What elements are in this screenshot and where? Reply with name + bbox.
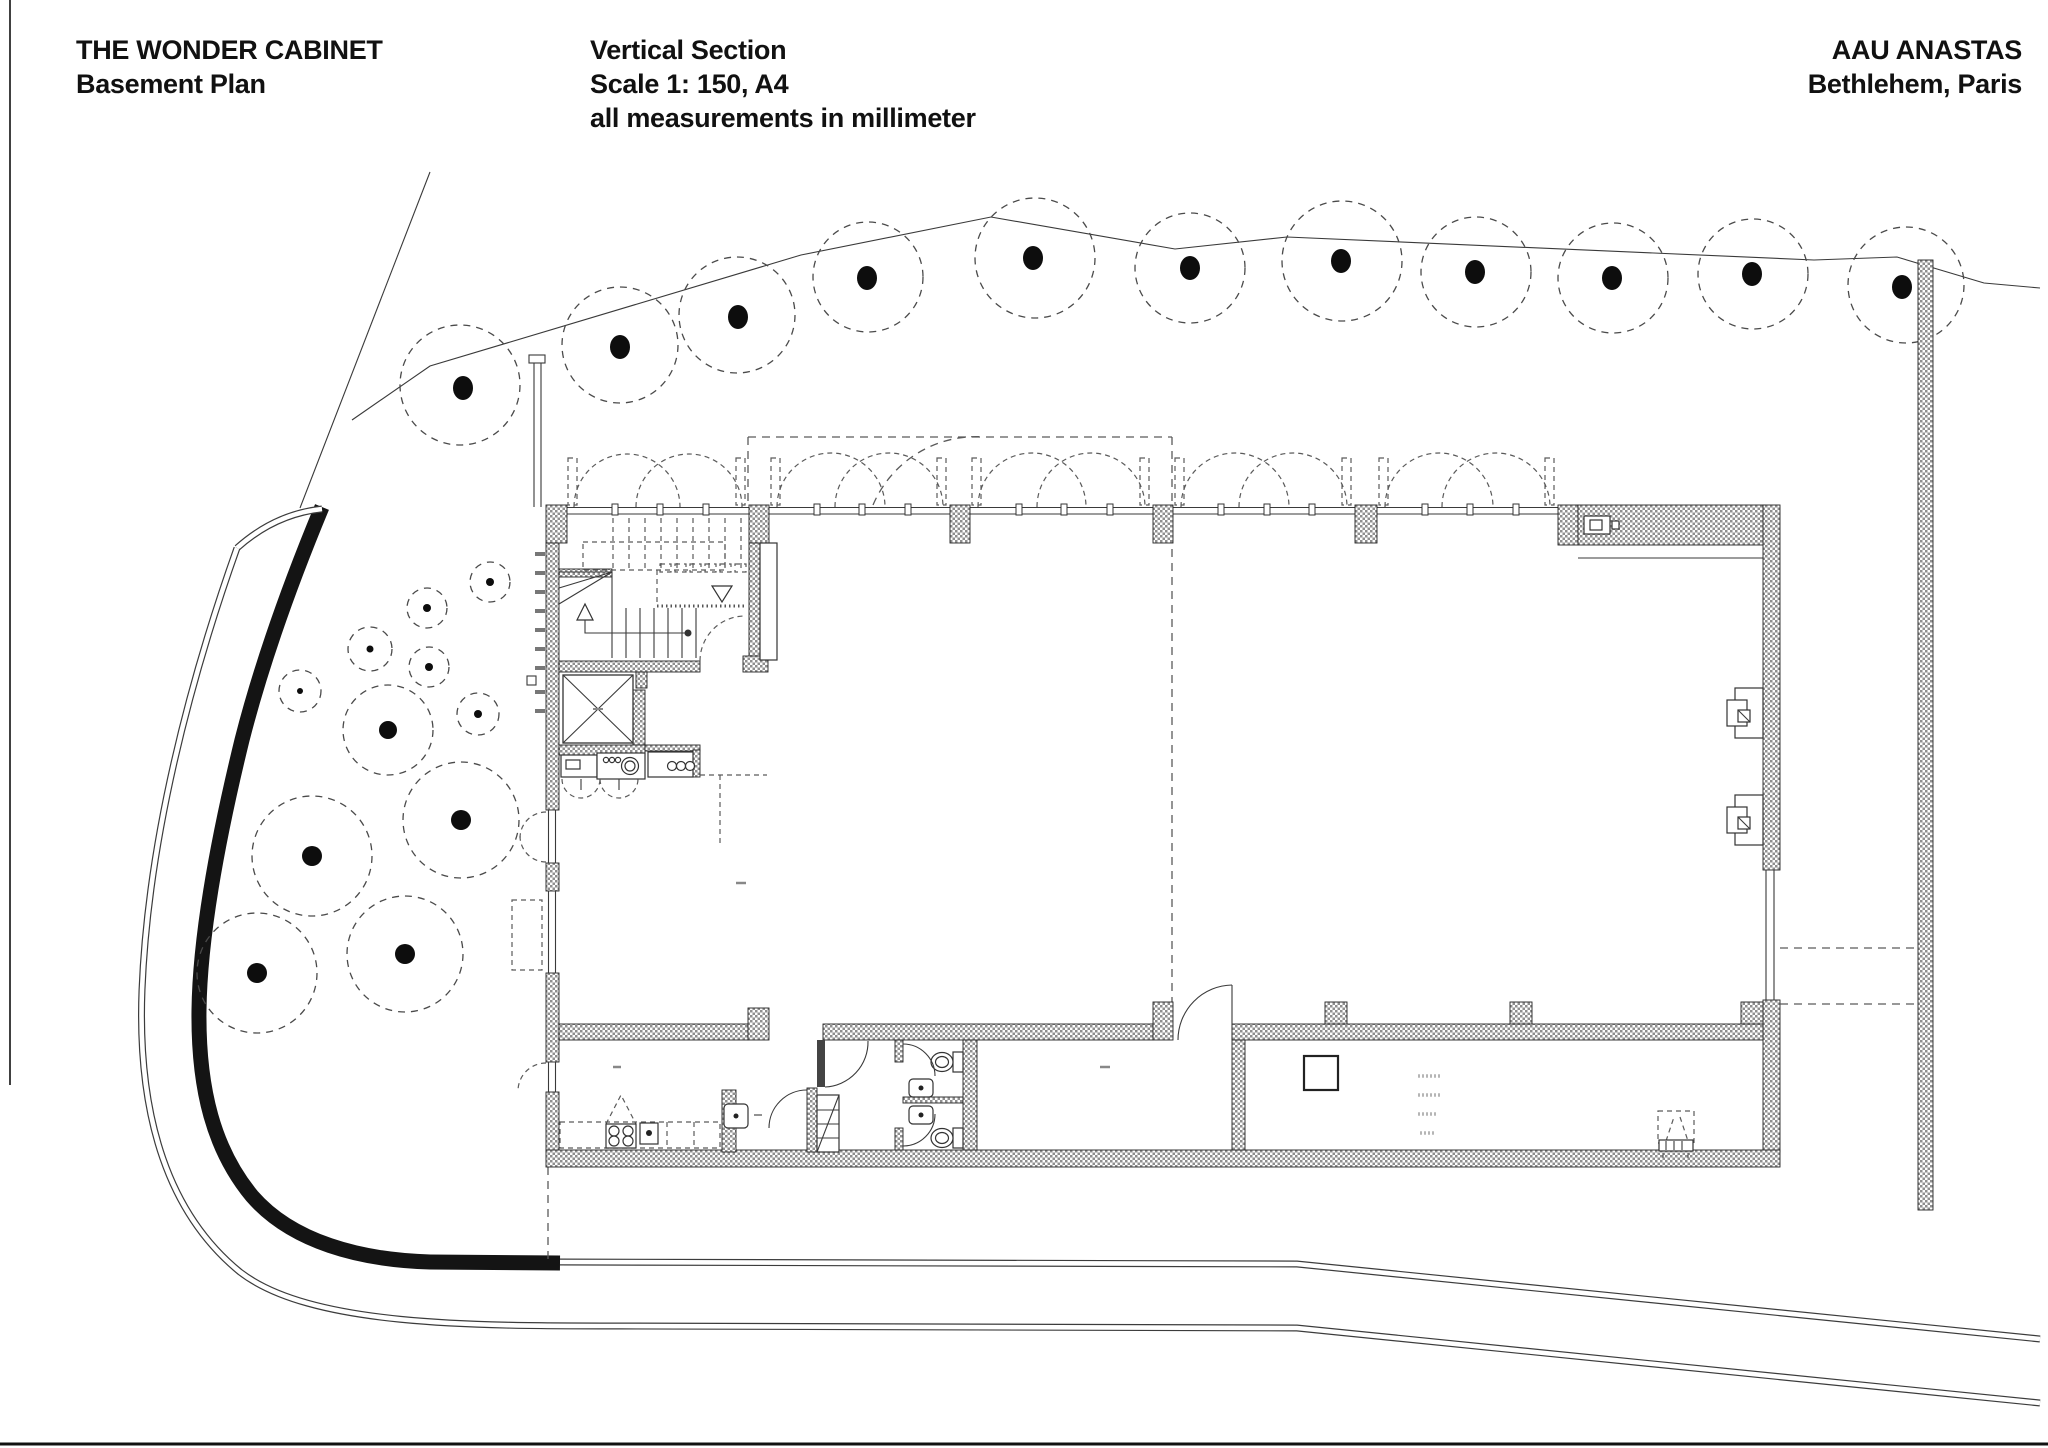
kitchenette-upper bbox=[561, 745, 767, 845]
stair-door-swing bbox=[700, 616, 745, 661]
east-wall bbox=[1763, 505, 1780, 1152]
door-swing bbox=[825, 1041, 868, 1087]
door-swing bbox=[769, 1090, 807, 1128]
stair-lobby-door-panel bbox=[760, 543, 777, 660]
tree-row-trees bbox=[400, 198, 1964, 445]
stair-down-arrow bbox=[712, 586, 732, 602]
west-wall bbox=[512, 543, 559, 1152]
stair-up-arrow bbox=[577, 604, 593, 620]
north-glazing-line bbox=[546, 504, 1578, 515]
fence-line bbox=[527, 355, 545, 713]
elevator bbox=[559, 675, 645, 755]
site-wall-band bbox=[199, 507, 560, 1263]
site-plan-svg bbox=[0, 0, 2048, 1448]
south-wall bbox=[546, 1150, 1780, 1167]
wall-tick-marks bbox=[535, 552, 545, 713]
faint-annotations bbox=[1418, 1076, 1442, 1133]
wall-unit bbox=[1727, 688, 1763, 738]
toilet bbox=[931, 1128, 963, 1148]
tree-row-ground-line bbox=[352, 217, 2040, 420]
building bbox=[512, 504, 1780, 1167]
planter-dashed bbox=[512, 900, 542, 970]
door-leaf bbox=[817, 1040, 825, 1087]
corridor-wall bbox=[559, 985, 1763, 1087]
wc-block bbox=[895, 1040, 977, 1150]
east-site-wall bbox=[1780, 260, 1933, 1210]
storage-room bbox=[1232, 1040, 1694, 1159]
colonnade-arches bbox=[568, 453, 1554, 507]
column-plinth bbox=[1304, 1056, 1338, 1090]
door-swing bbox=[1178, 985, 1232, 1040]
kitchen-lower bbox=[560, 1088, 839, 1152]
wall-fixtures-east bbox=[1727, 688, 1763, 845]
toilet bbox=[931, 1052, 963, 1072]
road-boundary bbox=[142, 172, 2040, 1403]
tree-row bbox=[352, 198, 2040, 445]
stair-block bbox=[559, 518, 777, 688]
door-swing bbox=[903, 1044, 935, 1076]
garden-trees bbox=[197, 562, 519, 1033]
wall-unit bbox=[1727, 795, 1763, 845]
drawing-sheet: THE WONDER CABINETBasement Plan Vertical… bbox=[0, 0, 2048, 1448]
